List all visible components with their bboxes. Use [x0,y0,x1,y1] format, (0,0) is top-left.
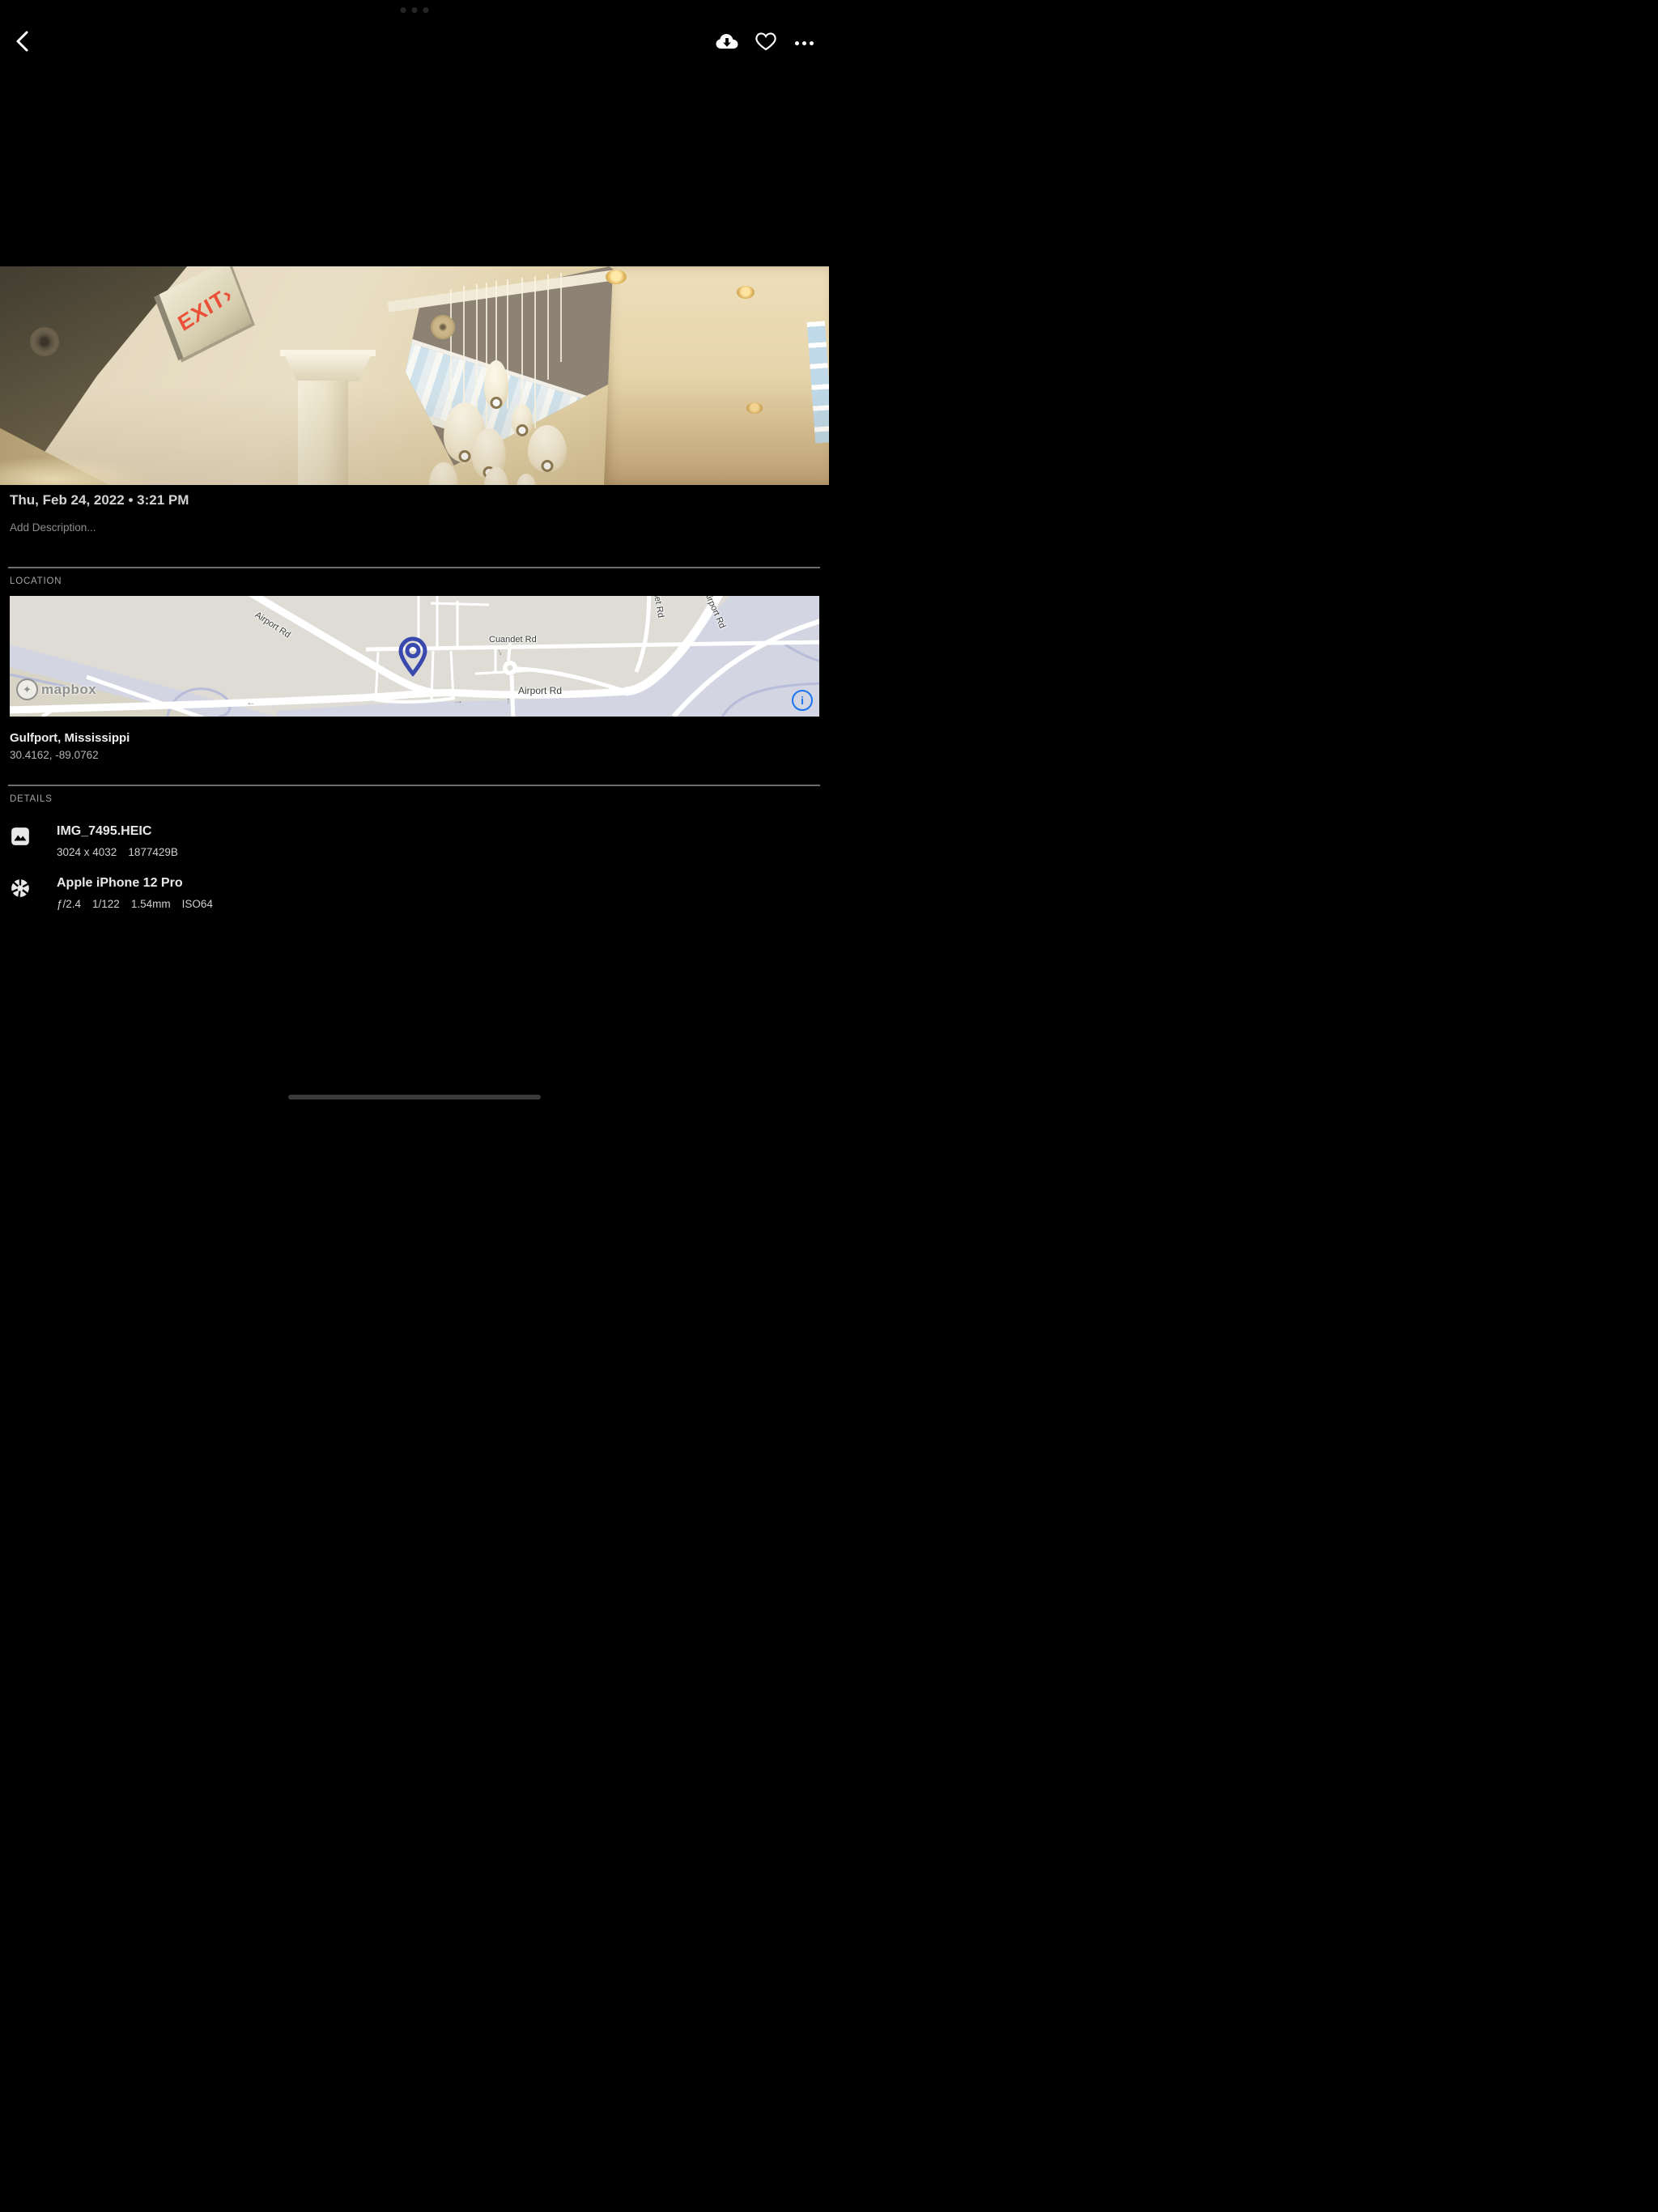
map-info-button[interactable]: i [792,690,813,711]
description-field[interactable]: Add Description... [10,521,96,534]
file-size: 1877429B [128,846,178,858]
photo-datetime: Thu, Feb 24, 2022 • 3:21 PM [10,492,189,508]
road-arrow: ↑ [506,695,511,706]
file-name: IMG_7495.HEIC [57,824,178,839]
file-info: IMG_7495.HEIC 3024 x 4032 1877429B [57,824,178,858]
detail-row-file: IMG_7495.HEIC 3024 x 4032 1877429B [10,824,819,858]
road-arrow: ← [246,696,256,708]
camera-info: Apple iPhone 12 Pro ƒ/2.4 1/122 1.54mm I… [57,876,213,910]
favorite-button[interactable] [750,27,782,59]
file-dimensions: 3024 x 4032 [57,846,117,858]
image-icon [10,826,31,847]
details-section-header: DETAILS [10,794,53,804]
road-arrow: → [453,695,463,706]
camera-shutter: 1/122 [92,898,120,910]
home-indicator[interactable] [288,1095,541,1100]
mapbox-logo-icon: ✦ [16,678,38,700]
camera-iso: ISO64 [182,898,213,910]
back-button[interactable] [6,27,39,59]
mapbox-wordmark: mapbox [41,682,96,698]
section-divider [8,567,820,568]
section-divider [8,785,820,786]
download-button[interactable] [711,27,743,59]
heart-outline-icon [755,32,776,55]
map-pin-icon [398,636,427,677]
camera-name: Apple iPhone 12 Pro [57,876,213,891]
more-options-button[interactable] [788,27,820,59]
photo-shading [0,266,829,485]
aperture-icon [10,878,31,899]
ellipsis-icon [795,41,814,45]
road-label: Airport Rd [518,685,562,696]
detail-row-camera: Apple iPhone 12 Pro ƒ/2.4 1/122 1.54mm I… [10,876,819,910]
camera-aperture: ƒ/2.4 [57,898,81,910]
top-bar [0,0,829,86]
location-coordinates: 30.4162, -89.0762 [10,749,99,761]
location-section-header: LOCATION [10,576,62,586]
location-place: Gulfport, Mississippi [10,731,130,745]
photo-viewer-image[interactable]: EXIT› [0,266,829,485]
cloud-download-icon [715,32,739,55]
road-label: Cuandet Rd [489,635,537,644]
chevron-left-icon [14,30,32,57]
camera-focal-length: 1.54mm [131,898,171,910]
mapbox-attribution[interactable]: ✦ mapbox [16,678,96,700]
location-map[interactable]: Airport Rd Cuandet Rd Airport Rd Airport… [10,596,819,717]
